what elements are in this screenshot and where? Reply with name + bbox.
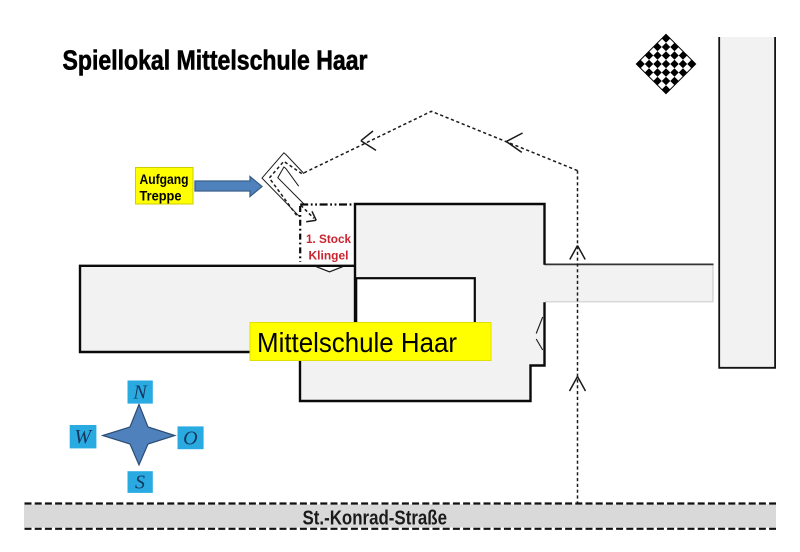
svg-text:W: W — [74, 426, 93, 448]
svg-text:O: O — [183, 427, 197, 449]
svg-text:Treppe: Treppe — [140, 188, 182, 204]
svg-text:N: N — [132, 382, 148, 404]
svg-text:Mittelschule Haar: Mittelschule Haar — [257, 327, 457, 358]
svg-text:St.-Konrad-Straße: St.-Konrad-Straße — [303, 506, 448, 529]
svg-text:Spiellokal Mittelschule Haar: Spiellokal Mittelschule Haar — [63, 45, 368, 76]
svg-text:1. Stock: 1. Stock — [306, 234, 352, 246]
svg-text:Aufgang: Aufgang — [140, 171, 189, 187]
svg-text:S: S — [135, 471, 145, 493]
svg-text:Klingel: Klingel — [309, 251, 349, 263]
